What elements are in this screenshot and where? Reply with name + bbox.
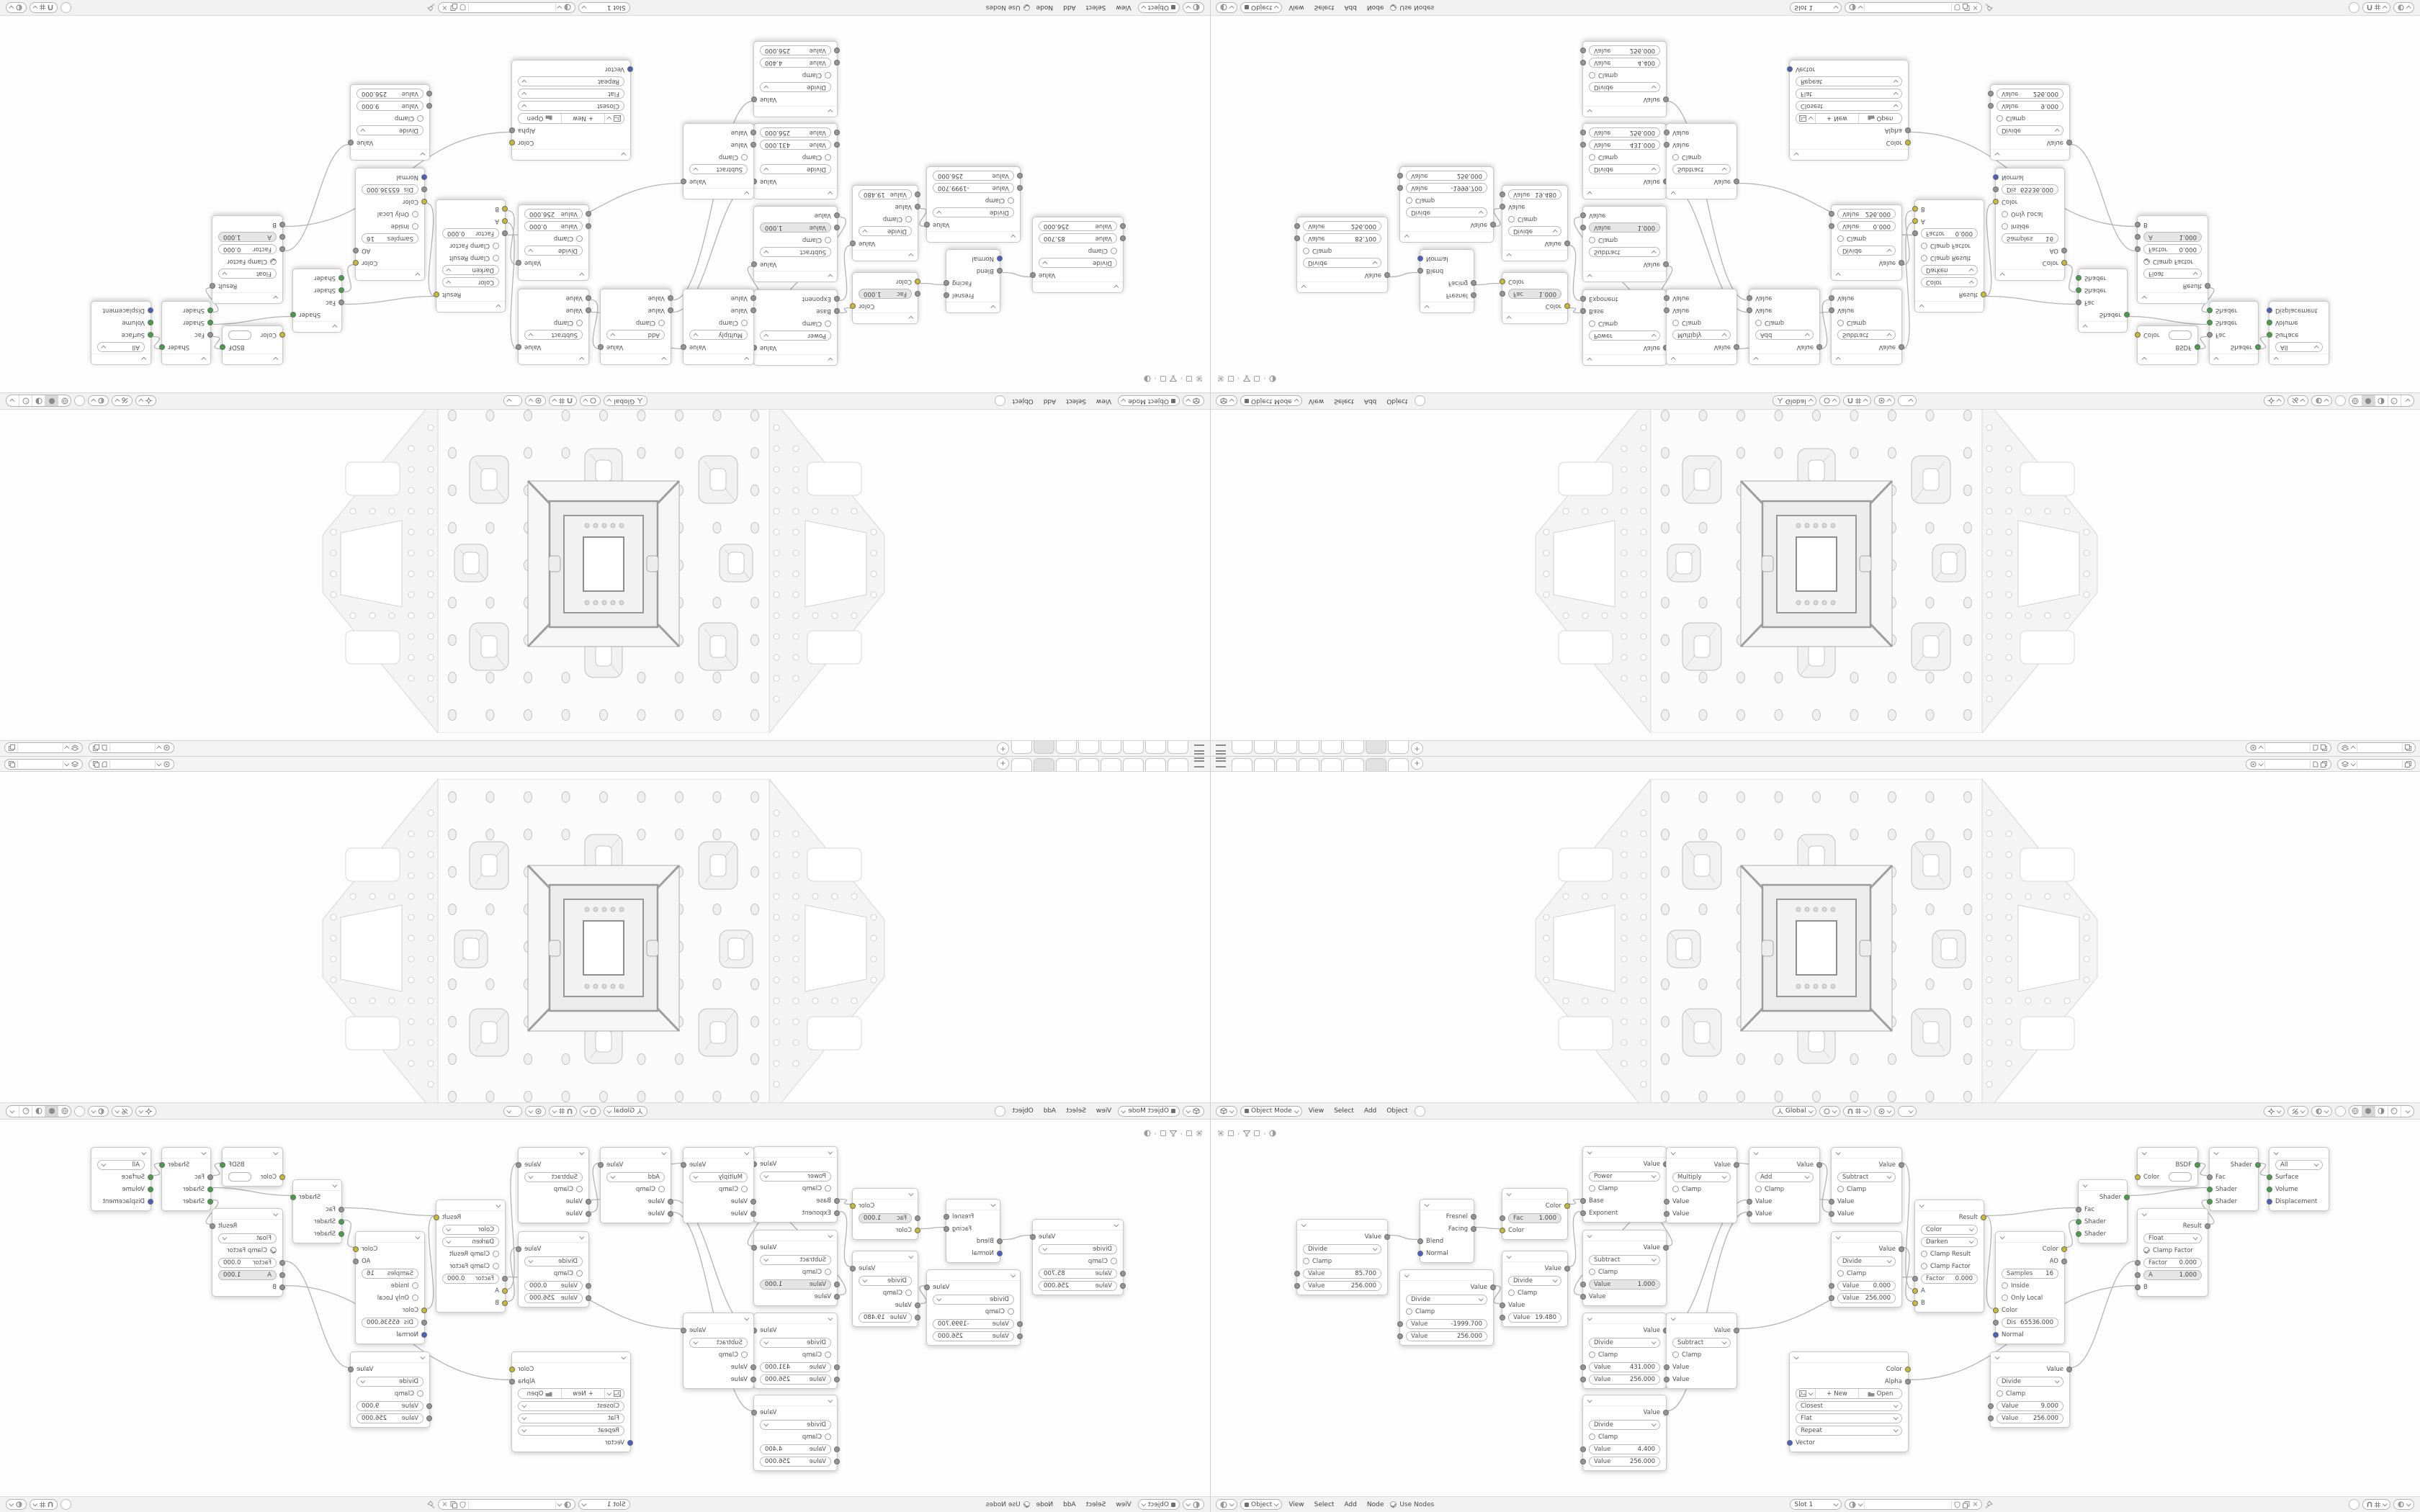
solid-shading-icon[interactable] [45, 1106, 58, 1117]
menu-add[interactable]: Add [1361, 397, 1380, 405]
node-checkbox[interactable]: Clamp [802, 1269, 831, 1276]
node-number-field[interactable]: Value0.000 [1837, 1281, 1896, 1291]
node-socket[interactable] [750, 1199, 756, 1205]
node-number-field[interactable]: Value9.000 [1996, 1401, 2063, 1411]
collapse-chevron-icon[interactable] [2142, 1211, 2147, 1216]
node-socket[interactable] [1899, 261, 1904, 266]
node-number-field[interactable]: Value256.000 [524, 210, 583, 220]
node-checkbox[interactable]: Clamp Factor [1921, 1263, 1971, 1270]
collapse-chevron-icon[interactable] [2274, 357, 2279, 362]
wireframe-shading-icon[interactable] [2349, 396, 2362, 407]
node-number-field[interactable]: Value256.000 [1589, 46, 1660, 56]
node-checkbox[interactable]: Clamp [985, 197, 1014, 204]
node-number-field[interactable]: Value431.000 [1589, 1362, 1660, 1372]
node-socket[interactable] [2267, 333, 2272, 338]
node-number-field[interactable]: Value1.000 [1589, 1279, 1660, 1290]
gizmos-button[interactable] [135, 1106, 156, 1117]
node-socket[interactable] [1663, 262, 1669, 268]
node-math-divide-2[interactable]: ValueDivideClampValue-1999.700Value256.0… [926, 1269, 1021, 1346]
node-socket[interactable] [834, 297, 840, 302]
node-math-divide-3[interactable]: ValueDivideClampValueValue19.480 [1502, 185, 1568, 261]
collapse-chevron-icon[interactable] [1671, 192, 1676, 197]
node-checkbox[interactable]: Inside [391, 223, 418, 230]
node-math-divide-5[interactable]: ValueDivideClampValue4.400Value256.000 [1582, 41, 1667, 117]
node-checkbox[interactable]: Clamp [719, 320, 748, 327]
node-socket[interactable] [2267, 1174, 2272, 1180]
menu-view[interactable]: View [1112, 4, 1134, 12]
collapse-chevron-icon[interactable] [415, 273, 420, 278]
xray-button[interactable] [88, 1106, 109, 1117]
node-socket[interactable] [1993, 1320, 1999, 1326]
node-number-field[interactable]: Value256.000 [524, 1293, 583, 1303]
node-socket[interactable] [681, 1162, 686, 1168]
node-socket[interactable] [207, 1187, 213, 1192]
node-select[interactable]: Divide [859, 1276, 912, 1286]
node-header[interactable] [1297, 1220, 1387, 1230]
node-socket[interactable] [1829, 224, 1834, 230]
node-socket[interactable] [1899, 1162, 1904, 1168]
node-number-field[interactable]: Value256.000 [357, 1413, 423, 1423]
node-socket[interactable] [915, 1228, 920, 1233]
workspace-tab[interactable] [1101, 741, 1121, 754]
node-header[interactable] [1502, 1189, 1567, 1200]
collapse-chevron-icon[interactable] [908, 1254, 913, 1259]
app-menu-icon[interactable] [1194, 744, 1204, 755]
node-socket[interactable] [279, 1284, 285, 1290]
node-socket[interactable] [339, 276, 344, 282]
color-swatch[interactable] [2169, 330, 2192, 340]
node-socket[interactable] [220, 345, 225, 351]
node-socket[interactable] [1993, 1332, 1999, 1338]
material-slot-select[interactable]: Slot 1 [578, 1499, 630, 1510]
collapse-chevron-icon[interactable] [828, 192, 833, 197]
node-number-field[interactable]: Dis65536.000 [2002, 1318, 2058, 1328]
node-socket[interactable] [2267, 1199, 2272, 1205]
new-scene-icon[interactable] [2313, 761, 2318, 768]
node-checkbox[interactable]: Clamp [1755, 320, 1784, 327]
node-socket[interactable] [1417, 256, 1423, 262]
node-select[interactable]: Divide [1589, 83, 1660, 93]
node-checkbox[interactable]: Clamp [1589, 320, 1618, 328]
node-number-field[interactable]: Factor0.000 [442, 1274, 499, 1284]
menu-select[interactable]: Select [1311, 4, 1338, 12]
material-name-field[interactable] [468, 4, 556, 12]
node-number-field[interactable]: Value256.000 [1589, 1457, 1660, 1467]
node-math-subtract-1[interactable]: ValueSubtractClampValue1.000Value [753, 1230, 838, 1306]
node-math-divide-7[interactable]: ValueDivideClampValue9.000Value256.000 [350, 1351, 430, 1428]
node-checkbox[interactable]: Only Local [377, 211, 418, 218]
node-socket[interactable] [2135, 235, 2141, 240]
node-socket[interactable] [915, 1315, 920, 1320]
node-mix-float[interactable]: ResultFloatClamp FactorFactor0.000A1.000… [2137, 215, 2208, 304]
viewport-3d[interactable]: Object Mode View Select Add Object Globa… [0, 772, 1210, 1120]
node-math-multiply[interactable]: ValueMultiplyClampValueValue [1666, 289, 1737, 365]
collapse-chevron-icon[interactable] [273, 1211, 278, 1216]
node-header[interactable] [1583, 1395, 1666, 1406]
node-socket[interactable] [997, 1238, 1003, 1244]
view-layer-selector[interactable] [4, 759, 83, 770]
menu-add[interactable]: Add [1059, 4, 1079, 12]
overlays-button[interactable] [2287, 396, 2308, 407]
node-invert[interactable]: ColorFac1.000Color [852, 272, 918, 324]
node-socket[interactable] [148, 1187, 153, 1192]
node-checkbox[interactable]: Inside [2002, 223, 2029, 230]
node-header[interactable] [223, 1148, 282, 1158]
node-select[interactable]: All [97, 343, 145, 353]
node-number-field[interactable]: Value256.000 [1837, 210, 1896, 220]
node-socket[interactable] [1580, 1282, 1586, 1287]
node-socket[interactable] [353, 1259, 359, 1264]
node-socket[interactable] [850, 304, 856, 310]
node-image-texture[interactable]: ColorAlpha+NewOpenClosestFlatRepeatVecto… [1789, 60, 1909, 161]
node-select[interactable]: Float [218, 269, 277, 279]
collapse-chevron-icon[interactable] [1794, 153, 1799, 158]
menu-view[interactable]: View [1112, 1501, 1134, 1508]
node-checkbox[interactable]: Only Local [377, 1295, 418, 1302]
viewport-3d[interactable]: Object Mode View Select Add Object Globa… [1210, 392, 2420, 740]
collapse-chevron-icon[interactable] [332, 325, 337, 330]
node-checkbox[interactable]: Clamp Factor [449, 243, 499, 250]
node-socket[interactable] [421, 175, 427, 181]
node-socket[interactable] [1663, 1410, 1669, 1416]
collapse-chevron-icon[interactable] [1995, 1354, 2000, 1359]
node-socket[interactable] [834, 1446, 840, 1452]
workspace-tab[interactable] [1299, 741, 1319, 754]
node-header[interactable] [754, 354, 837, 365]
node-mix-color[interactable]: ResultColorDarkenClamp ResultClamp Facto… [1914, 1200, 1984, 1313]
node-select[interactable]: Multiply [689, 330, 748, 341]
node-header[interactable] [212, 1209, 282, 1220]
node-socket[interactable] [751, 1245, 757, 1251]
node-socket[interactable] [1816, 345, 1822, 351]
node-number-field[interactable]: Dis65536.000 [362, 185, 418, 195]
node-number-field[interactable]: Value19.480 [1508, 1313, 1561, 1323]
node-select[interactable]: Add [1755, 1172, 1814, 1182]
node-socket[interactable] [2076, 1231, 2081, 1237]
node-material-output[interactable]: AllSurfaceVolumeDisplacement [91, 1147, 151, 1211]
node-socket[interactable] [279, 247, 285, 253]
node-checkbox[interactable]: Clamp [1406, 197, 1435, 204]
node-number-field[interactable]: Value256.000 [1039, 1281, 1117, 1291]
collapse-chevron-icon[interactable] [1113, 1222, 1119, 1227]
node-header[interactable] [853, 312, 918, 323]
node-socket[interactable] [2267, 320, 2272, 326]
node-socket[interactable] [1981, 292, 1986, 298]
node-math-multiply[interactable]: ValueMultiplyClampValueValue [683, 289, 754, 365]
material-datablock[interactable]: × [1845, 1499, 1981, 1510]
shader-type-select[interactable]: Object [1138, 1499, 1180, 1510]
node-socket[interactable] [997, 1251, 1003, 1256]
menu-add[interactable]: Add [1040, 1107, 1059, 1115]
node-select[interactable]: Color [1921, 278, 1978, 288]
node-number-field[interactable]: Value1.000 [760, 223, 831, 233]
node-socket[interactable] [834, 1210, 840, 1216]
menu-add[interactable]: Add [1340, 4, 1360, 12]
node-checkbox[interactable]: Clamp [554, 320, 583, 327]
node-socket[interactable] [1564, 304, 1570, 310]
node-socket[interactable] [516, 1246, 521, 1252]
node-math-divide-6[interactable]: ValueDivideClampValue0.000Value256.000 [518, 204, 589, 281]
node-select[interactable]: Subtract [1589, 1255, 1660, 1265]
node-socket[interactable] [915, 292, 920, 297]
node-socket[interactable] [834, 1282, 840, 1287]
workspace-tab[interactable] [1101, 758, 1121, 771]
node-math-divide-1[interactable]: ValueDivideClampValue85.700Value256.000 [1032, 1219, 1124, 1295]
node-header[interactable] [1749, 1148, 1819, 1158]
node-mix-float[interactable]: ResultFloatClamp FactorFactor0.000A1.000… [2137, 1208, 2208, 1297]
node-number-field[interactable]: Value0.000 [524, 1281, 583, 1291]
node-select[interactable]: Subtract [760, 1255, 831, 1265]
collapse-chevron-icon[interactable] [1587, 1398, 1592, 1403]
node-math-subtract-1[interactable]: ValueSubtractClampValue1.000Value [1582, 206, 1667, 282]
node-socket[interactable] [1017, 1321, 1023, 1327]
collapse-chevron-icon[interactable] [1404, 235, 1410, 240]
node-header[interactable] [519, 269, 588, 280]
node-socket[interactable] [421, 1332, 427, 1338]
node-header[interactable] [293, 321, 341, 332]
node-socket[interactable] [997, 256, 1003, 262]
node-number-field[interactable]: Value256.000 [760, 1457, 831, 1467]
node-header[interactable] [1667, 188, 1736, 199]
node-socket[interactable] [279, 222, 285, 228]
node-checkbox[interactable]: Clamp [1837, 1186, 1866, 1193]
node-header[interactable] [1667, 1148, 1736, 1158]
view-layer-selector[interactable] [4, 742, 83, 753]
material-datablock[interactable]: × [438, 2, 575, 13]
node-socket[interactable] [915, 279, 920, 285]
shading-dropdown[interactable] [2401, 396, 2414, 407]
new-image-button[interactable]: +New [1816, 114, 1859, 123]
collapse-chevron-icon[interactable] [1836, 1234, 1841, 1239]
node-select[interactable]: Divide [357, 126, 423, 136]
node-socket[interactable] [751, 1410, 757, 1416]
menu-object[interactable]: Object [1383, 1107, 1411, 1115]
node-socket[interactable] [339, 300, 344, 306]
node-socket[interactable] [1747, 308, 1752, 314]
snap-button[interactable] [2362, 1499, 2390, 1510]
node-header[interactable] [684, 354, 753, 364]
collapse-chevron-icon[interactable] [828, 109, 833, 114]
material-shading-icon[interactable] [2375, 396, 2388, 407]
node-header[interactable] [436, 1200, 505, 1211]
node-select[interactable]: Closest [1796, 102, 1902, 112]
node-socket[interactable] [1664, 1364, 1670, 1370]
collapse-chevron-icon[interactable] [1587, 358, 1592, 363]
node-checkbox[interactable]: Clamp [883, 1290, 912, 1297]
node-layer-weight[interactable]: FresnelFacingBlendNormal [946, 1199, 1000, 1263]
node-select[interactable]: Float [2143, 269, 2202, 279]
node-socket[interactable] [997, 269, 1003, 274]
fake-user-shield-icon[interactable] [460, 1501, 466, 1508]
overlay-button[interactable] [6, 2, 27, 13]
node-number-field[interactable]: Value256.000 [357, 89, 423, 99]
node-socket[interactable] [1988, 1403, 1994, 1409]
node-socket[interactable] [2061, 261, 2067, 266]
workspace-tab[interactable] [1056, 741, 1077, 754]
node-number-field[interactable]: Value431.000 [760, 1362, 831, 1372]
node-checkbox[interactable]: Clamp [802, 154, 831, 161]
editor-type-button[interactable] [1183, 1106, 1204, 1117]
node-socket[interactable] [421, 187, 427, 193]
node-socket[interactable] [834, 143, 840, 148]
node-header[interactable] [1420, 1200, 1474, 1210]
node-socket[interactable] [2267, 1187, 2272, 1192]
node-math-divide-1[interactable]: ValueDivideClampValue85.700Value256.000 [1296, 1219, 1388, 1295]
node-socket[interactable] [426, 1416, 432, 1421]
node-socket[interactable] [915, 1215, 920, 1221]
node-select[interactable]: Divide [1303, 258, 1381, 269]
node-number-field[interactable]: Value256.000 [933, 1331, 1014, 1341]
add-workspace-button[interactable]: + [997, 742, 1009, 755]
view-layer-selector[interactable] [2337, 759, 2416, 770]
node-math-divide-3[interactable]: ValueDivideClampValueValue19.480 [852, 1251, 918, 1327]
node-header[interactable] [1991, 1352, 2069, 1363]
node-checkbox[interactable]: Clamp [802, 72, 831, 79]
node-socket[interactable] [2124, 312, 2130, 318]
collapse-chevron-icon[interactable] [908, 1191, 913, 1196]
menu-select[interactable]: Select [1330, 397, 1358, 405]
node-header[interactable] [2138, 292, 2208, 303]
node-header[interactable] [2079, 321, 2127, 332]
node-header[interactable] [1915, 1200, 1984, 1211]
node-checkbox[interactable]: Clamp Result [1921, 255, 1971, 262]
node-checkbox[interactable]: Clamp [1755, 1186, 1784, 1193]
menu-view[interactable]: View [1093, 1107, 1115, 1115]
collapse-chevron-icon[interactable] [908, 253, 913, 258]
use-nodes-checkbox[interactable]: Use Nodes [1390, 1501, 1434, 1508]
tool-circle-button[interactable] [2349, 1499, 2359, 1510]
node-math-divide-7[interactable]: ValueDivideClampValue9.000Value256.000 [1990, 1351, 2070, 1428]
collapse-chevron-icon[interactable] [1587, 192, 1592, 197]
collapse-chevron-icon[interactable] [2274, 1150, 2279, 1155]
node-select[interactable]: Color [442, 278, 499, 288]
node-socket[interactable] [1993, 199, 1999, 205]
node-math-divide-1[interactable]: ValueDivideClampValue85.700Value256.000 [1296, 217, 1388, 293]
node-socket[interactable] [509, 1367, 515, 1372]
node-select[interactable]: Color [1921, 1225, 1978, 1235]
node-header[interactable] [853, 250, 918, 261]
node-checkbox[interactable]: Clamp [1837, 320, 1866, 327]
node-socket[interactable] [1734, 1328, 1739, 1333]
node-mix-shader-2[interactable]: ShaderFacShaderShader [161, 1147, 211, 1211]
node-header[interactable] [1502, 312, 1567, 323]
node-header[interactable] [212, 292, 282, 303]
node-mix-shader-1[interactable]: ShaderFacShaderShader [2078, 1179, 2128, 1243]
node-select[interactable]: Darken [1921, 266, 1978, 276]
copy-scene-icon[interactable] [2321, 761, 2327, 768]
node-header[interactable] [853, 1251, 918, 1262]
collapse-chevron-icon[interactable] [1010, 1272, 1016, 1277]
collapse-chevron-icon[interactable] [1587, 1233, 1592, 1238]
node-select[interactable]: Add [606, 330, 665, 341]
collapse-chevron-icon[interactable] [828, 358, 833, 363]
node-select[interactable]: Subtract [689, 165, 748, 175]
node-header[interactable] [1583, 1313, 1666, 1324]
node-socket[interactable] [339, 1231, 344, 1237]
collapse-chevron-icon[interactable] [1754, 1150, 1759, 1155]
render-preview-toggle[interactable] [2335, 1106, 2346, 1117]
node-mix-shader-1[interactable]: ShaderFacShaderShader [292, 269, 342, 333]
node-select[interactable]: Power [760, 1171, 831, 1182]
workspace-tab[interactable] [1366, 758, 1386, 771]
node-socket[interactable] [924, 222, 930, 228]
node-select[interactable]: Divide [1508, 227, 1561, 237]
workspace-tab[interactable] [1034, 758, 1054, 771]
node-socket[interactable] [426, 104, 432, 109]
workspace-tab[interactable] [1299, 758, 1319, 771]
node-number-field[interactable]: Value85.700 [1303, 1269, 1381, 1279]
node-mix-color[interactable]: ResultColorDarkenClamp ResultClamp Facto… [436, 199, 506, 312]
node-number-field[interactable]: Value256.000 [1406, 171, 1487, 181]
node-socket[interactable] [850, 1266, 856, 1272]
node-number-field[interactable]: Value-1999.700 [1406, 184, 1487, 194]
scene-selector[interactable] [89, 742, 174, 753]
node-number-field[interactable]: Value4.400 [1589, 58, 1660, 68]
node-socket[interactable] [2195, 345, 2200, 351]
node-number-field[interactable]: Samples16 [2002, 1269, 2058, 1279]
node-select[interactable]: Repeat [518, 77, 624, 87]
node-socket[interactable] [339, 1207, 344, 1212]
menu-select[interactable]: Select [1330, 1107, 1358, 1115]
node-header[interactable] [1583, 188, 1666, 199]
node-number-field[interactable]: Value256.000 [1996, 89, 2063, 99]
node-number-field[interactable]: Value9.000 [357, 102, 423, 112]
node-number-field[interactable]: Factor0.000 [218, 1258, 277, 1268]
unlink-material-icon[interactable]: × [442, 4, 447, 12]
collapse-chevron-icon[interactable] [1836, 1150, 1841, 1155]
node-number-field[interactable]: Factor0.000 [1921, 229, 1978, 239]
node-checkbox[interactable]: Clamp [985, 1308, 1014, 1315]
node-math-subtract-2[interactable]: ValueSubtractClampValueValue [1831, 289, 1902, 365]
node-socket[interactable] [220, 1162, 225, 1168]
node-socket[interactable] [1580, 1446, 1586, 1452]
node-socket[interactable] [279, 1174, 285, 1180]
node-socket[interactable] [1384, 1234, 1390, 1240]
workspace-tab[interactable] [1254, 741, 1275, 754]
node-math-power[interactable]: ValuePowerClampBaseExponent [753, 289, 838, 366]
snap-button[interactable] [30, 1499, 58, 1510]
node-header[interactable] [684, 1313, 753, 1324]
node-socket[interactable] [1734, 345, 1739, 351]
node-socket[interactable] [1734, 1162, 1739, 1168]
node-socket[interactable] [1580, 1294, 1586, 1300]
material-name-field[interactable] [1864, 4, 1952, 12]
collapse-chevron-icon[interactable] [2142, 357, 2147, 362]
node-checkbox[interactable]: Clamp [636, 1186, 665, 1193]
collapse-chevron-icon[interactable] [744, 192, 749, 197]
node-number-field[interactable]: Dis65536.000 [2002, 185, 2058, 195]
node-socket[interactable] [1905, 1367, 1911, 1372]
node-number-field[interactable]: Value0.000 [1837, 222, 1896, 232]
collapse-chevron-icon[interactable] [744, 357, 749, 362]
workspace-tab[interactable] [1366, 741, 1386, 754]
xray-button[interactable] [2311, 1106, 2332, 1117]
node-socket[interactable] [1912, 1288, 1918, 1294]
scene-selector[interactable] [89, 759, 174, 770]
node-select[interactable]: Darken [442, 1237, 499, 1247]
node-socket[interactable] [2255, 345, 2261, 351]
node-socket[interactable] [1397, 1333, 1403, 1339]
mode-select[interactable]: Object Mode [1118, 1106, 1180, 1117]
collapse-chevron-icon[interactable] [1671, 1315, 1676, 1320]
node-socket[interactable] [148, 320, 153, 326]
node-socket[interactable] [1664, 1211, 1670, 1217]
node-socket[interactable] [586, 224, 591, 230]
node-socket[interactable] [159, 1162, 165, 1168]
workspace-tab[interactable] [1254, 758, 1275, 771]
node-checkbox[interactable]: Clamp [1672, 1351, 1701, 1359]
node-socket[interactable] [1787, 1440, 1793, 1446]
